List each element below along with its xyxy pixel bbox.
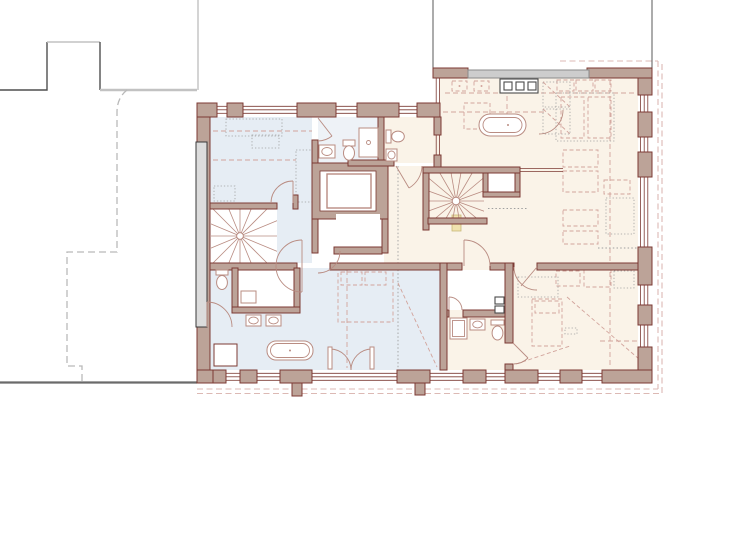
appliance-icon-3 [528, 82, 536, 90]
wall-segment [433, 68, 468, 78]
washbasin-icon [246, 315, 261, 326]
floor-corridor [275, 203, 312, 263]
wall-segment [357, 103, 399, 117]
party-wall-strip [196, 142, 207, 327]
wall-segment [602, 370, 652, 383]
wall-segment [294, 268, 300, 313]
main-stair-newel [452, 197, 460, 205]
wall-segment [417, 103, 440, 117]
wall-segment [415, 383, 425, 395]
wall-segment [378, 117, 384, 163]
toilet-icon [491, 320, 504, 340]
floor-suite-top-right [440, 78, 638, 270]
bathtub-icon [479, 114, 526, 136]
skylight-strip [468, 70, 589, 78]
neighbor-outline-left [0, 42, 47, 90]
wall-segment [428, 218, 487, 224]
toilet-icon [386, 130, 404, 143]
wall-segment [397, 370, 430, 383]
bathtub-icon [267, 341, 313, 360]
wall-segment [440, 263, 447, 370]
wall-segment [297, 103, 336, 117]
toilet-icon [216, 270, 228, 290]
wall-segment [232, 307, 300, 313]
floor-hall [384, 166, 441, 263]
wall-segment [638, 78, 652, 95]
duct-icon-2 [495, 306, 504, 313]
wall-segment [213, 370, 226, 383]
duct-icon-1 [495, 297, 504, 304]
wall-segment [292, 383, 302, 396]
washbasin-icon [266, 315, 281, 326]
door-leaf [328, 347, 332, 369]
wall-segment [505, 370, 538, 383]
wall-segment [210, 263, 297, 270]
appliance-icon-1 [504, 82, 512, 90]
washbasin-icon [386, 149, 397, 161]
wall-segment [197, 103, 217, 117]
wall-segment [312, 140, 318, 163]
door-leaf [370, 347, 374, 369]
vanity-icon [450, 318, 467, 339]
wall-segment [447, 310, 449, 317]
wall-segment [587, 68, 652, 78]
wall-segment [382, 219, 388, 253]
floor-plan-canvas [0, 0, 750, 537]
spiral-stair-newel [237, 233, 244, 240]
property-line [67, 90, 127, 382]
wall-segment [227, 103, 243, 117]
shower-tray-icon [241, 291, 256, 303]
washbasin-icon [470, 319, 485, 330]
wall-segment [483, 192, 520, 197]
wall-segment [434, 117, 441, 135]
appliance-icon-2 [516, 82, 524, 90]
wall-segment [463, 370, 486, 383]
wall-segment [638, 247, 652, 285]
washbasin-icon [319, 145, 335, 158]
wall-segment [280, 370, 312, 383]
wall-segment [240, 370, 257, 383]
elevator-door-gap [336, 214, 380, 221]
wall-segment [423, 167, 520, 173]
wall-segment [560, 370, 582, 383]
wall-segment [638, 112, 652, 137]
wall-segment [312, 219, 318, 253]
floor-elevator-lobby [318, 219, 382, 247]
toilet-icon [343, 140, 355, 160]
wall-segment [197, 370, 213, 383]
wall-segment [505, 263, 513, 343]
wall-segment [537, 263, 638, 270]
wall-segment [638, 305, 652, 325]
floor-stair-niche [488, 173, 515, 192]
wall-segment [505, 364, 513, 370]
shower-icon [359, 128, 378, 157]
wall-segment [232, 268, 238, 313]
wall-segment [638, 152, 652, 177]
wall-segment [334, 247, 382, 254]
elevator-cab [327, 174, 371, 208]
wall-segment [293, 195, 298, 209]
closet-cabinet [214, 344, 237, 366]
wall-segment [210, 203, 277, 209]
